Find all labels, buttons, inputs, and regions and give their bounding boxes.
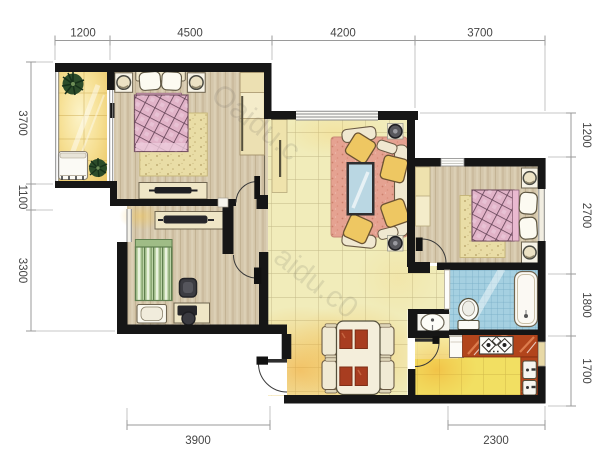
svg-text:3700: 3700 — [16, 110, 28, 136]
svg-text:1200: 1200 — [70, 28, 96, 40]
svg-text:3700: 3700 — [467, 28, 493, 40]
svg-text:2700: 2700 — [580, 203, 592, 229]
svg-text:3300: 3300 — [16, 258, 28, 284]
svg-text:4500: 4500 — [177, 28, 203, 40]
svg-text:1200: 1200 — [580, 122, 592, 148]
svg-text:3900: 3900 — [185, 435, 211, 447]
svg-text:2300: 2300 — [483, 435, 509, 447]
svg-text:1100: 1100 — [16, 185, 28, 210]
svg-text:1700: 1700 — [580, 358, 592, 384]
svg-text:1800: 1800 — [580, 292, 592, 318]
svg-text:4200: 4200 — [330, 28, 356, 40]
